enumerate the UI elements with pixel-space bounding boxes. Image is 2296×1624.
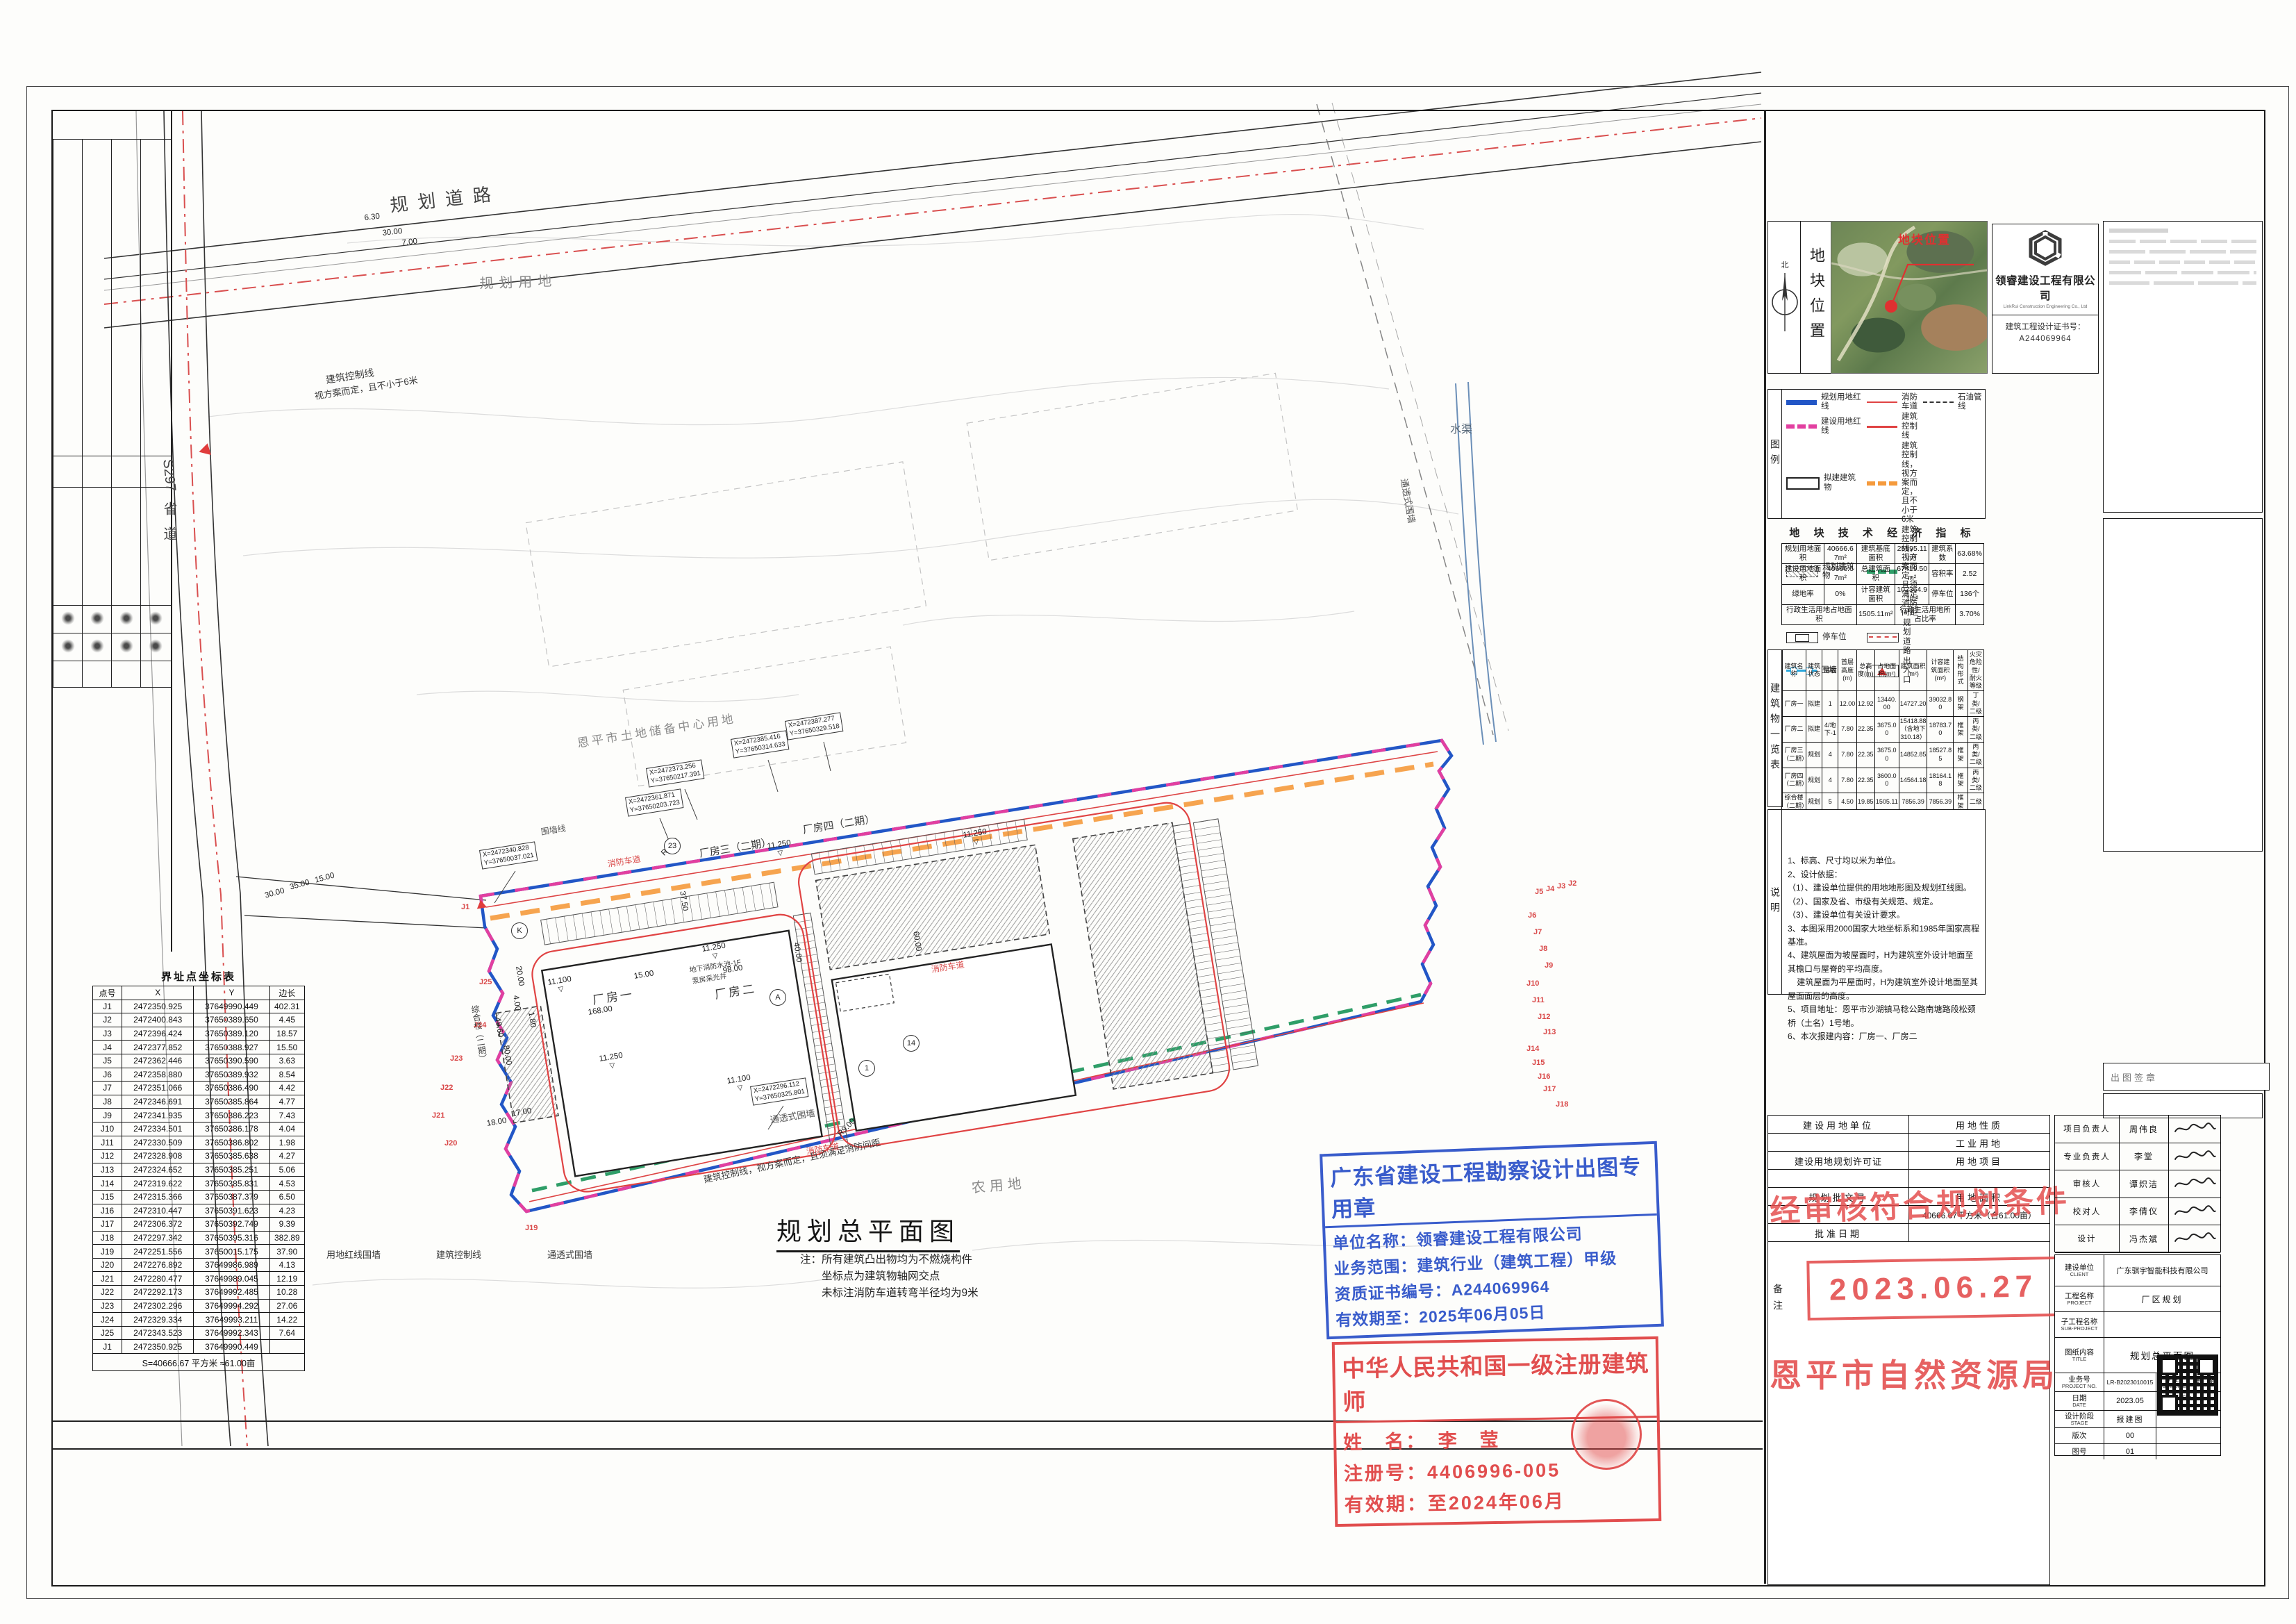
plan-note: 注：所有建筑凸出物均为不燃烧构件 <box>800 1252 979 1268</box>
col-header: 总高度(m) <box>1856 650 1874 691</box>
satellite-map: 地块位置 <box>1831 221 1988 374</box>
boundary-point: J19 <box>525 1224 538 1232</box>
plan-note: 坐标点为建筑物轴网交点 <box>800 1268 979 1285</box>
side-notes-box <box>2103 221 2263 513</box>
table-row: J24 2472329.334 37649993.211 14.22 <box>93 1313 305 1327</box>
projno-label: 业务号 <box>2068 1375 2090 1384</box>
signature-scribble <box>2172 1175 2217 1192</box>
y-coord: 37650386.223 <box>194 1109 269 1122</box>
boundary-point: J1 <box>461 903 469 911</box>
legend-item: 建设用地红线 <box>1786 417 1861 436</box>
point-id: J6 <box>93 1068 122 1082</box>
boundary-coordinate-table: 界址点坐标表 点号 X Y 边长 J1 2472350.925 37649990… <box>92 969 305 1371</box>
legend-item: 规划用地红线 <box>1786 393 1861 411</box>
subproject-name <box>2104 1312 2220 1337</box>
x-coord: 2472334.501 <box>122 1122 194 1136</box>
empty-cell <box>1909 1224 2049 1242</box>
boundary-point: J14 <box>1526 1045 1539 1053</box>
table-row: J21 2472280.477 37649989.045 12.19 <box>93 1272 305 1286</box>
client-label: 建设单位 <box>2065 1263 2094 1272</box>
edge-length: 4.45 <box>269 1013 304 1027</box>
binding-table <box>53 139 172 688</box>
table-row: J5 2472362.446 37650390.590 3.63 <box>93 1054 305 1068</box>
note-line: 2、设计依据： <box>1788 868 1981 881</box>
personnel-role: 设计 <box>2055 1225 2120 1252</box>
dimension: 6.30 <box>364 213 381 223</box>
personnel-name: 李堂 <box>2120 1143 2169 1170</box>
legend-swatch-icon <box>1867 481 1897 486</box>
boundary-point: J24 <box>474 1021 486 1029</box>
indicator-label: 建设用地面积 <box>1782 564 1824 584</box>
x-coord: 2472341.935 <box>122 1109 194 1122</box>
legend-swatch-icon <box>1867 401 1897 403</box>
cert-number: A244069964 <box>1993 332 2098 343</box>
col-header: 首层高度(m) <box>1838 650 1856 691</box>
edge-length: 4.77 <box>269 1095 304 1109</box>
elevation-mark: ▽ <box>558 985 564 993</box>
client-name: 广东骐宇智能科技有限公司 <box>2104 1255 2220 1286</box>
boundary-point: J5 <box>1535 888 1543 896</box>
legend-item-label: 建筑控制线，视方案而定，且不小于6米 <box>1902 442 1918 524</box>
point-id: J16 <box>93 1204 122 1218</box>
indicator-value: 102364.91m² <box>1895 584 1929 604</box>
col-header: 建筑面积(m²) <box>1899 650 1927 691</box>
signature-scribble <box>2172 1120 2217 1137</box>
legend-item: 石油管线 <box>1923 393 1983 411</box>
point-id: J3 <box>93 1027 122 1041</box>
x-coord: 2472350.925 <box>122 1000 194 1013</box>
table-row: J22 2472292.173 37649992.485 10.28 <box>93 1286 305 1300</box>
indicator-value: 1505.11m² <box>1856 604 1895 624</box>
callout-label: 用地红线围墙 <box>326 1250 381 1260</box>
col-header: X <box>122 986 194 1000</box>
y-coord: 37650385.638 <box>194 1150 269 1163</box>
elevation-mark: ▽ <box>609 1061 615 1070</box>
boundary-point: J4 <box>1546 885 1554 893</box>
legend-item-label: 规划用地红线 <box>1821 393 1861 411</box>
axis-bubble: 14 <box>903 1035 920 1052</box>
edge-length: 1.98 <box>269 1136 304 1150</box>
indicator-value: 0% <box>1824 584 1857 604</box>
boundary-point: J18 <box>1556 1100 1568 1109</box>
company-name: 领睿建设工程有限公司 <box>1993 270 2098 303</box>
col-header: Y <box>194 986 269 1000</box>
round-seal-icon <box>1571 1399 1642 1470</box>
y-coord: 37650386.802 <box>194 1136 269 1150</box>
boundary-point: J25 <box>479 978 492 986</box>
y-coord: 37650385.864 <box>194 1095 269 1109</box>
boundary-point: J10 <box>1526 979 1539 988</box>
indicator-value: 40666.67m² <box>1824 544 1857 564</box>
note-line: （2）、国家及省、市级有关规范、规定。 <box>1788 895 1981 909</box>
coord-table-title: 界址点坐标表 <box>92 969 305 986</box>
map-marker-label: 地块位置 <box>1898 230 1951 247</box>
table-row: J18 2472297.342 37650395.316 382.89 <box>93 1231 305 1245</box>
table-row: J16 2472310.447 37650391.623 4.23 <box>93 1204 305 1218</box>
callout-label: 建筑控制线 <box>436 1250 481 1260</box>
landuse-unit-label: 建设用地单位 <box>1768 1116 1909 1134</box>
legend-strip-label: 图例 <box>1767 389 1783 519</box>
drawing-sheet: 界址点坐标表 点号 X Y 边长 J1 2472350.925 37649990… <box>0 0 2296 1624</box>
legend-item: 建筑控制线 <box>1867 413 1918 440</box>
edge-length: 382.89 <box>269 1231 304 1245</box>
x-coord: 2472319.622 <box>122 1177 194 1191</box>
dwgno-value: 01 <box>2104 1444 2156 1459</box>
date-label: 日期 <box>2072 1394 2087 1402</box>
x-coord: 2472330.509 <box>122 1136 194 1150</box>
x-coord: 2472343.523 <box>122 1326 194 1340</box>
y-coord: 37650386.490 <box>194 1082 269 1095</box>
table-row: J2 2472400.843 37650389.650 4.45 <box>93 1013 305 1027</box>
point-id: J4 <box>93 1041 122 1054</box>
x-coord: 2472358.880 <box>122 1068 194 1082</box>
personnel-role: 项目负责人 <box>2055 1116 2120 1143</box>
bureau-stamp-text: 恩平市自然资源局 <box>1770 1350 2058 1396</box>
edge-length: 6.50 <box>269 1190 304 1204</box>
axis-bubble: A <box>770 989 786 1006</box>
elevation-mark: ▽ <box>712 952 718 960</box>
y-coord: 37650395.316 <box>194 1231 269 1245</box>
table-row: J15 2472315.366 37650387.379 6.50 <box>93 1190 305 1204</box>
point-id: J8 <box>93 1095 122 1109</box>
personnel-row: 专业负责人 李堂 <box>2055 1143 2220 1171</box>
point-id: J14 <box>93 1177 122 1191</box>
north-arrow-icon: 北 <box>1771 259 1799 335</box>
x-coord: 2472377.852 <box>122 1041 194 1054</box>
approval-date-stamp: 2023.06.27 <box>1806 1257 2061 1320</box>
y-coord: 37649992.343 <box>194 1326 269 1340</box>
x-coord: 2472315.366 <box>122 1190 194 1204</box>
project-label: 工程名称 <box>2065 1292 2094 1300</box>
y-coord: 37650015.175 <box>194 1245 269 1259</box>
indicator-label: 绿地率 <box>1782 584 1824 604</box>
edge-length: 4.13 <box>269 1258 304 1272</box>
elevation-mark: ▽ <box>777 849 783 857</box>
x-coord: 2472306.372 <box>122 1218 194 1232</box>
legend-item-label: 建筑控制线 <box>1902 413 1918 440</box>
legend-item-label: 建设用地红线 <box>1821 417 1861 436</box>
edge-length: 4.27 <box>269 1150 304 1163</box>
signature-cell <box>2169 1143 2220 1170</box>
area-total: S=40666.67 平方米 ≈61.00亩 <box>93 1354 305 1371</box>
edge-length: 3.63 <box>269 1054 304 1068</box>
table-row: J17 2472306.372 37650392.749 9.39 <box>93 1218 305 1232</box>
col-header: 建筑状态 <box>1806 650 1822 691</box>
boundary-point: J20 <box>444 1139 457 1147</box>
boundary-point: J17 <box>1543 1085 1556 1093</box>
indicator-value: 3.70% <box>1956 604 1984 624</box>
rev-value: 00 <box>2104 1428 2156 1443</box>
table-row: J1 2472350.925 37649990.449 <box>93 1340 305 1354</box>
table-row: 厂房二拟建 4/地下-17.80 22.353675.00 15418.88（含… <box>1782 717 1984 743</box>
col-header: 占地面积(m²) <box>1874 650 1899 691</box>
point-id: J15 <box>93 1190 122 1204</box>
point-id: J24 <box>93 1313 122 1327</box>
plan-title: 规划总平面图 <box>776 1211 960 1252</box>
legend-swatch-icon <box>1786 424 1817 429</box>
x-coord: 2472350.925 <box>122 1340 194 1354</box>
landuse-permit-label: 建设用地规划许可证 <box>1768 1152 1909 1170</box>
edge-length: 18.57 <box>269 1027 304 1041</box>
stage-label: 设计阶段 <box>2065 1412 2094 1420</box>
edge-length <box>269 1340 304 1354</box>
dimension: 7.00 <box>401 238 418 248</box>
entrance-triangle-icon <box>476 899 487 909</box>
axis-bubble: K <box>511 922 528 939</box>
rev-label: 版次 <box>2055 1428 2104 1443</box>
edge-length: 14.22 <box>269 1313 304 1327</box>
table-row: 厂房一拟建 112.00 12.9213440.00 14727.2039032… <box>1782 691 1984 717</box>
land-label: 规划用地 <box>479 274 558 292</box>
edge-length: 5.06 <box>269 1163 304 1177</box>
legend-item-label: 拟建建筑物 <box>1824 474 1861 492</box>
legend-items: 规划用地红线 建设用地红线 拟建建筑物 规划建筑物 停车位 <box>1786 393 1981 513</box>
personnel-name: 冯杰斌 <box>2120 1225 2169 1252</box>
y-coord: 37649993.211 <box>194 1313 269 1327</box>
table-row: J10 2472334.501 37650386.178 4.04 <box>93 1122 305 1136</box>
indicator-label: 行政生活用地占地面积 <box>1782 604 1857 624</box>
table-row: 厂房四（二期）规划 47.80 22.353600.00 14564.18181… <box>1782 768 1984 793</box>
landuse-nature-label: 用地性质 <box>1909 1116 2049 1134</box>
building-table: 建筑名称 建筑状态 层数 首层高度(m) 总高度(m) 占地面积(m²) 建筑面… <box>1781 649 1984 829</box>
x-coord: 2472329.334 <box>122 1313 194 1327</box>
x-coord: 2472280.477 <box>122 1272 194 1286</box>
note-line: 4、建筑屋面为坡屋面时，H为建筑室外设计地面至其檐口与屋脊的平均高度。 <box>1788 949 1981 976</box>
x-coord: 2472251.556 <box>122 1245 194 1259</box>
y-coord: 37649990.449 <box>194 1000 269 1013</box>
y-coord: 37649989.045 <box>194 1272 269 1286</box>
indicator-label: 计容建筑面积 <box>1856 584 1895 604</box>
edge-length: 9.39 <box>269 1218 304 1232</box>
indicator-label: 建筑系数 <box>1929 544 1956 564</box>
edge-length: 12.19 <box>269 1272 304 1286</box>
table-row: J13 2472324.652 37650385.251 5.06 <box>93 1163 305 1177</box>
boundary-point: J11 <box>1532 996 1545 1004</box>
indicator-label: 行政生活用地所占比率 <box>1895 604 1955 624</box>
edge-length: 4.53 <box>269 1177 304 1191</box>
legend-item: 建筑控制线，视方案而定，且不小于6米 <box>1867 442 1918 524</box>
boundary-point: J8 <box>1539 945 1547 953</box>
note-line: （3）、建设单位有关设计要求。 <box>1788 909 1981 922</box>
company-logo-icon <box>2027 230 2063 266</box>
plan-note: 未标注消防车道转弯半径均为9米 <box>800 1285 979 1302</box>
y-coord: 37649986.989 <box>194 1258 269 1272</box>
x-coord: 2472400.843 <box>122 1013 194 1027</box>
signature-scribble <box>2172 1230 2217 1247</box>
subproject-label: 子工程名称 <box>2061 1318 2098 1326</box>
signature-cell <box>2169 1198 2220 1225</box>
y-coord: 37649990.449 <box>194 1340 269 1354</box>
boundary-point: J23 <box>450 1054 463 1063</box>
x-coord: 2472297.342 <box>122 1231 194 1245</box>
channel-label: 水渠 <box>1450 424 1472 436</box>
note-line: 6、本次报建内容：厂房一、厂房二 <box>1788 1030 1981 1043</box>
personnel-name: 周伟良 <box>2120 1116 2169 1143</box>
point-id: J10 <box>93 1122 122 1136</box>
side-empty-box <box>2103 518 2263 852</box>
empty-cell <box>1768 1134 1909 1152</box>
y-coord: 37650387.379 <box>194 1190 269 1204</box>
indicator-value: 2.52 <box>1956 564 1984 584</box>
indicator-label: 停车位 <box>1929 584 1956 604</box>
callout-label: 通透式围墙 <box>547 1250 592 1260</box>
table-row: J14 2472319.622 37650385.831 4.53 <box>93 1177 305 1191</box>
projno-value: LR-B2023010015 <box>2104 1373 2156 1391</box>
legend-swatch-icon <box>1786 477 1820 490</box>
legend-item: 停车位 <box>1786 632 1861 643</box>
indicator-label: 容积率 <box>1929 564 1956 584</box>
legend-item-label: 消防车道 <box>1902 393 1918 411</box>
indicator-label: 建筑基底面积 <box>1856 544 1895 564</box>
project-name: 厂区规划 <box>2104 1286 2220 1311</box>
x-coord: 2472351.066 <box>122 1082 194 1095</box>
boundary-point: J12 <box>1538 1013 1550 1021</box>
legend-item-label: 停车位 <box>1822 633 1847 642</box>
y-coord: 37650388.927 <box>194 1041 269 1054</box>
indicator-value: 25895.11m² <box>1895 544 1929 564</box>
indicator-label: 总建筑面积 <box>1856 564 1895 584</box>
stage-value: 报建图 <box>2104 1411 2156 1427</box>
architect-validity: 有效期：至2024年06月 <box>1337 1480 1658 1524</box>
point-id: J17 <box>93 1218 122 1232</box>
point-id: J7 <box>93 1082 122 1095</box>
axis-bubble: 23 <box>664 838 681 854</box>
edge-length: 402.31 <box>269 1000 304 1013</box>
personnel-role: 校对人 <box>2055 1198 2120 1225</box>
road-label-provincial: 省道 <box>161 502 176 552</box>
edge-length: 4.04 <box>269 1122 304 1136</box>
point-id: J20 <box>93 1258 122 1272</box>
remarks-label: 备注 <box>1771 1284 1785 1317</box>
personnel-row: 校对人 李倩仪 <box>2055 1198 2220 1226</box>
dwgno-label: 图号 <box>2055 1444 2104 1459</box>
point-id: J23 <box>93 1299 122 1313</box>
edge-length: 10.28 <box>269 1286 304 1300</box>
signature-scribble <box>2172 1148 2217 1165</box>
boundary-point: J3 <box>1557 882 1565 890</box>
x-coord: 2472328.908 <box>122 1150 194 1163</box>
design-firm-block: 领睿建设工程有限公司 LinkRui Construction Engineer… <box>1992 224 2099 374</box>
personnel-name: 李倩仪 <box>2120 1198 2169 1225</box>
personnel-row: 审核人 谭炽洁 <box>2055 1170 2220 1198</box>
y-coord: 37650390.590 <box>194 1054 269 1068</box>
archive-qr-code <box>2157 1354 2218 1416</box>
y-coord: 37650389.932 <box>194 1068 269 1082</box>
legend-swatch-icon <box>1867 426 1897 428</box>
note-line: 1、标高、尺寸均以米为单位。 <box>1788 854 1981 868</box>
edge-length: 4.42 <box>269 1082 304 1095</box>
note-line: 建筑屋面为平屋面时，H为建筑室外设计地面至其屋面面层的高度。 <box>1788 976 1981 1003</box>
point-id: J13 <box>93 1163 122 1177</box>
personnel-role: 专业负责人 <box>2055 1143 2120 1170</box>
table-row: J7 2472351.066 37650386.490 4.42 <box>93 1082 305 1095</box>
legend-swatch-icon <box>1786 632 1818 643</box>
y-coord: 37650392.749 <box>194 1218 269 1232</box>
x-coord: 2472324.652 <box>122 1163 194 1177</box>
personnel-row: 项目负责人 周伟良 <box>2055 1116 2220 1143</box>
legend-item: 消防车道 <box>1867 393 1918 411</box>
x-coord: 2472396.424 <box>122 1027 194 1041</box>
axis-bubble: 1 <box>858 1060 875 1077</box>
edge-length: 27.06 <box>269 1299 304 1313</box>
table-row: J4 2472377.852 37650388.927 15.50 <box>93 1041 305 1054</box>
location-panel-label: 地块位置 <box>1800 221 1832 374</box>
y-coord: 37649992.485 <box>194 1286 269 1300</box>
blue-design-stamp: 广东省建设工程勘察设计出图专用章 单位名称：领睿建设工程有限公司 业务范围：建筑… <box>1320 1141 1664 1339</box>
boundary-point: J13 <box>1543 1028 1556 1036</box>
table-row: 厂房三（二期）规划 47.80 22.353675.00 14852.85185… <box>1782 742 1984 768</box>
table-row: J9 2472341.935 37650386.223 7.43 <box>93 1109 305 1122</box>
table-row: J23 2472302.296 37649994.292 27.06 <box>93 1299 305 1313</box>
y-coord: 37650385.251 <box>194 1163 269 1177</box>
note-line: 5、项目地址：恩平市沙湖镇马稔公路南塘路段松颈桥（土名）1号地。 <box>1788 1003 1981 1030</box>
point-id: J1 <box>93 1000 122 1013</box>
point-id: J18 <box>93 1231 122 1245</box>
boundary-point: J2 <box>1568 879 1577 888</box>
point-id: J11 <box>93 1136 122 1150</box>
edge-length: 15.50 <box>269 1041 304 1054</box>
company-name-en: LinkRui Construction Engineering Co., Lt… <box>1993 303 2098 309</box>
elevation-mark: ▽ <box>737 1084 743 1092</box>
building-rows: 厂房一拟建 112.00 12.9213440.00 14727.2039032… <box>1782 691 1984 829</box>
panel-divider <box>1764 110 1766 1584</box>
y-coord: 37650391.623 <box>194 1204 269 1218</box>
personnel-table: 项目负责人 周伟良 专业负责人 李堂 审核人 谭炽洁 <box>2054 1115 2221 1252</box>
legend-swatch-icon <box>1786 400 1817 405</box>
table-row: J3 2472396.424 37650389.120 18.57 <box>93 1027 305 1041</box>
notes-lines: 1、标高、尺寸均以米为单位。2、设计依据：（1）、建设单位提供的用地地形图及规划… <box>1788 814 1981 1043</box>
col-header: 层数 <box>1822 650 1838 691</box>
col-header: 火灾危险性/耐火等级 <box>1968 650 1983 691</box>
col-header: 计容建筑面积(m²) <box>1927 650 1954 691</box>
personnel-name: 谭炽洁 <box>2120 1170 2169 1198</box>
svg-text:北: 北 <box>1781 260 1788 270</box>
signature-cell <box>2169 1225 2220 1252</box>
table-row: J12 2472328.908 37650385.638 4.27 <box>93 1150 305 1163</box>
y-coord: 37650389.120 <box>194 1027 269 1041</box>
table-row: J1 2472350.925 37649990.449 402.31 <box>93 1000 305 1013</box>
personnel-role: 审核人 <box>2055 1170 2120 1198</box>
sheet-title-label: 图纸内容 <box>2065 1348 2094 1357</box>
col-header: 点号 <box>93 986 122 1000</box>
x-coord: 2472292.173 <box>122 1286 194 1300</box>
edge-length: 37.90 <box>269 1245 304 1259</box>
point-id: J19 <box>93 1245 122 1259</box>
table-row: J6 2472358.880 37650389.932 8.54 <box>93 1068 305 1082</box>
col-header: 结构形式 <box>1954 650 1968 691</box>
indicator-value: 136个 <box>1956 584 1984 604</box>
boundary-point: J15 <box>1532 1059 1545 1067</box>
indicator-value: 40666.67m² <box>1824 564 1857 584</box>
cert-label: 建筑工程设计证书号： <box>1993 321 2098 332</box>
y-coord: 37649994.292 <box>194 1299 269 1313</box>
table-row: J11 2472330.509 37650386.802 1.98 <box>93 1136 305 1150</box>
point-id: J2 <box>93 1013 122 1027</box>
y-coord: 37650385.831 <box>194 1177 269 1191</box>
point-id: J21 <box>93 1272 122 1286</box>
blue-stamp-title: 广东省建设工程勘察设计出图专用章 <box>1322 1144 1657 1228</box>
col-header: 建筑名称 <box>1782 650 1806 691</box>
point-id: J12 <box>93 1150 122 1163</box>
table-row: J19 2472251.556 37650015.175 37.90 <box>93 1245 305 1259</box>
edge-length: 4.23 <box>269 1204 304 1218</box>
boundary-point: J6 <box>1528 911 1536 920</box>
edge-length: 7.43 <box>269 1109 304 1122</box>
notes-strip-label: 说明 <box>1767 809 1783 995</box>
x-coord: 2472362.446 <box>122 1054 194 1068</box>
point-id: J1 <box>93 1340 122 1354</box>
indicator-value: 63.68% <box>1956 544 1984 564</box>
